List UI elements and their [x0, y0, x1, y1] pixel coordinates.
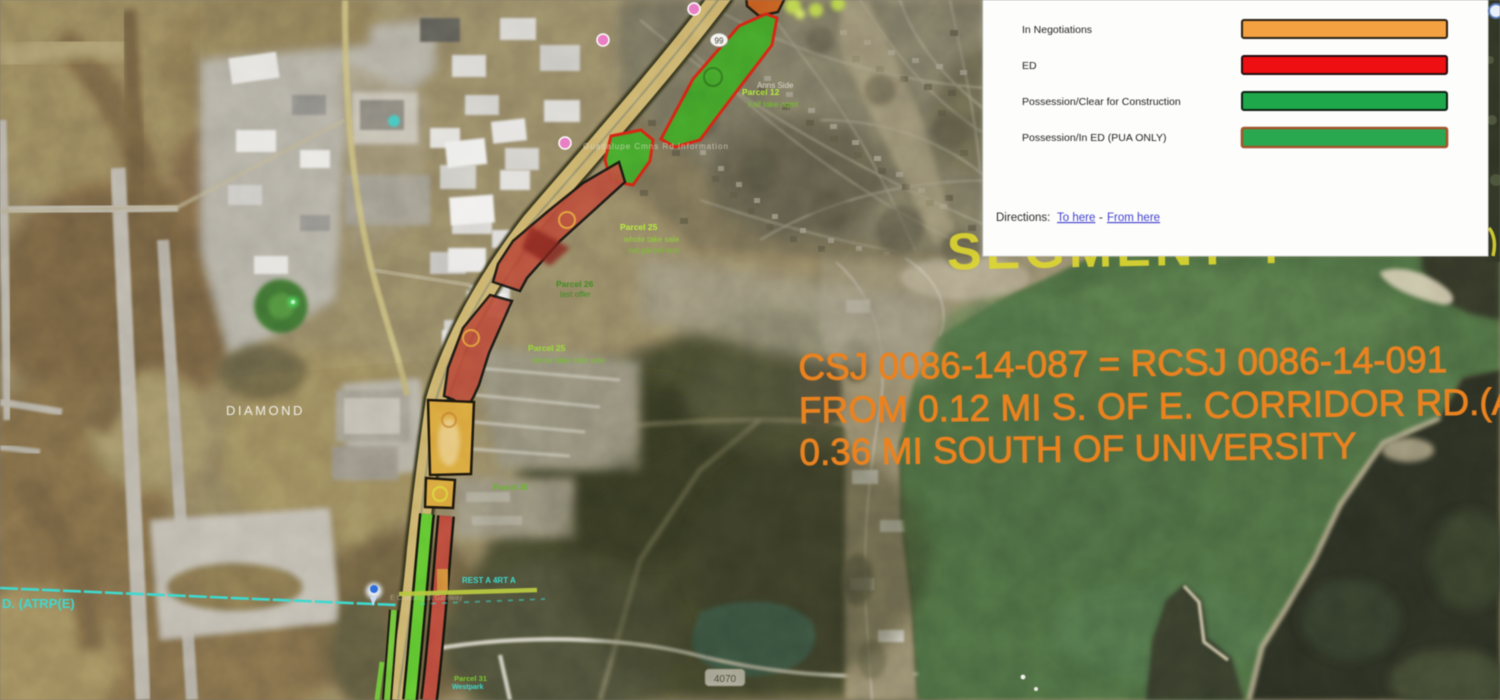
svg-text:net parcel rem: net parcel rem: [628, 246, 679, 255]
svg-text:Parcel 25: Parcel 25: [528, 343, 566, 353]
svg-text:Parcel 30: Parcel 30: [493, 483, 529, 492]
svg-text:Directions:: Directions:: [996, 212, 1050, 224]
svg-text:DIAMOND: DIAMOND: [226, 403, 305, 418]
svg-text:D. (ATRP(E): D. (ATRP(E): [2, 596, 75, 611]
svg-text:ED: ED: [1022, 60, 1037, 72]
svg-text:Guadalupe Cmns Rd Information: Guadalupe Cmns Rd Information: [583, 142, 729, 151]
svg-text:FROM 0.12 MI S. OF E. CORRIDOR: FROM 0.12 MI S. OF E. CORRIDOR RD.(A: [799, 381, 1500, 431]
svg-text:In Negotiations: In Negotiations: [1022, 24, 1092, 36]
svg-text:To here: To here: [1057, 212, 1095, 224]
svg-text:CSJ 0086-14-087 = RCSJ 0086-14: CSJ 0086-14-087 = RCSJ 0086-14-091: [798, 339, 1447, 388]
svg-text:99: 99: [715, 37, 724, 46]
svg-text:Parcel 31: Parcel 31: [454, 674, 487, 683]
svg-text:last offer: last offer: [560, 290, 591, 299]
svg-text:whole take sale: whole take sale: [623, 235, 680, 244]
svg-text:Possession/Clear for Construct: Possession/Clear for Construction: [1022, 96, 1181, 108]
svg-text:Westpark: Westpark: [452, 684, 483, 691]
svg-text:Parcel 25: Parcel 25: [620, 222, 658, 232]
svg-text:From here: From here: [1107, 212, 1160, 224]
svg-text:half take aqmt: half take aqmt: [748, 100, 799, 109]
svg-text:Possession/In ED (PUA ONLY): Possession/In ED (PUA ONLY): [1022, 132, 1167, 144]
svg-text:0.36 MI SOUTH OF UNIVERSITY: 0.36 MI SOUTH OF UNIVERSITY: [799, 425, 1357, 473]
svg-text:-: -: [1099, 212, 1103, 224]
svg-text:REST A 4RT A: REST A 4RT A: [462, 576, 516, 585]
svg-text:Parcel 26: Parcel 26: [556, 279, 594, 289]
svg-text:Anns Side: Anns Side: [757, 81, 794, 90]
svg-text:whole take tract sale: whole take tract sale: [531, 356, 605, 365]
